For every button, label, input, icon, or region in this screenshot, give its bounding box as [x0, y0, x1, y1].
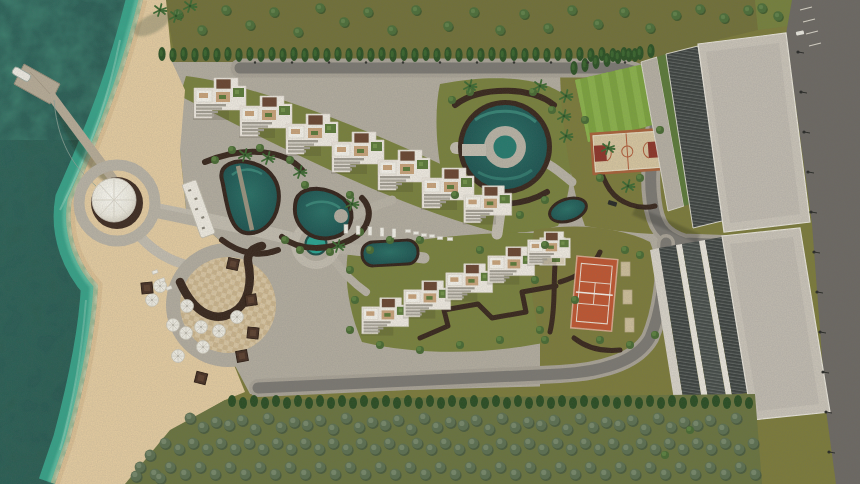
tennis-court [571, 256, 618, 331]
tower-south [650, 228, 830, 420]
aerial-render [0, 0, 860, 484]
